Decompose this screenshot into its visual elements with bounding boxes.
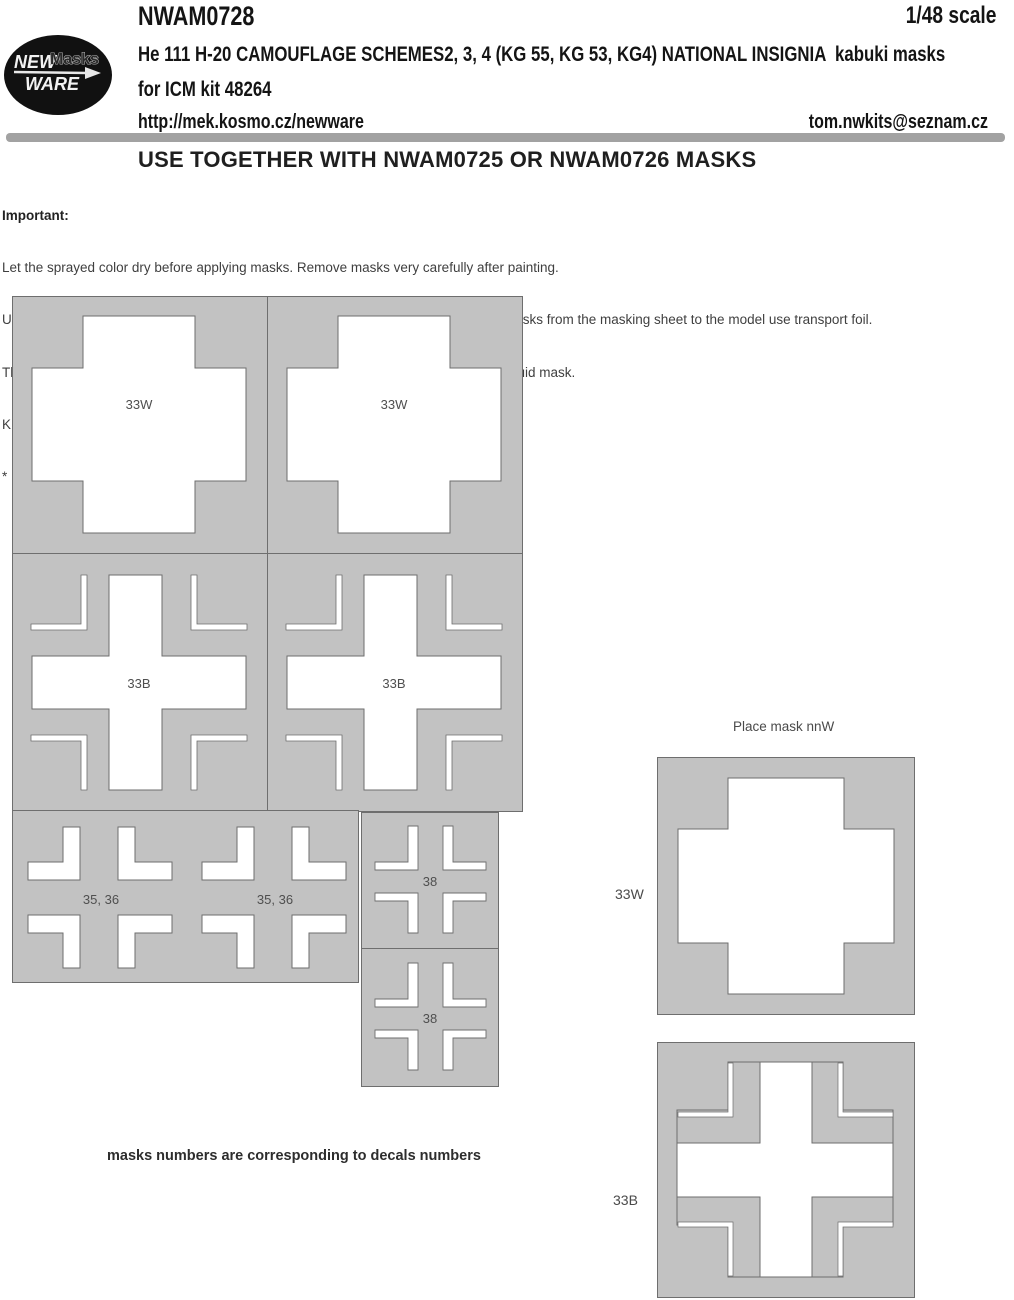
mask-label-33b: 33B [382,676,405,691]
contact-email: tom.nwkits@seznam.cz [809,111,988,134]
compatibility-notice: USE TOGETHER WITH NWAM0725 OR NWAM0726 M… [138,147,756,173]
example-mask-33b [657,1042,915,1298]
mask-label-35-36: 35, 36 [257,892,293,907]
logo-word-masks: Masks [50,51,99,68]
example-label-33b: 33B [613,1192,638,1208]
product-code: NWAM0728 [138,1,254,32]
footer-note: masks numbers are corresponding to decal… [107,1148,481,1164]
mask-label-33b: 33B [127,676,150,691]
mask-label-38: 38 [423,874,437,889]
website-url: http://mek.kosmo.cz/newware [138,111,364,134]
kit-subtitle: for ICM kit 48264 [138,78,272,102]
instruction-sheet: NEW Masks WARE NWAM0728 1/48 scale He 11… [0,0,1014,1300]
mask-label-33w: 33W [126,397,153,412]
mask-panel-38: 38 38 [361,812,499,1088]
mask-label-35-36: 35, 36 [83,892,119,907]
sheet-title: He 111 H-20 CAMOUFLAGE SCHEMES2, 3, 4 (K… [138,43,945,67]
mask-grid-33w-33b: 33W 33W 33B 33B [12,296,523,812]
placement-note-line: Place mask nnW [733,718,834,735]
instructions-heading: Important: [2,207,872,224]
example-mask-33w [657,757,915,1015]
mask-label-38: 38 [423,1011,437,1026]
header-divider-bar [6,133,1005,142]
instruction-line: Let the sprayed color dry before applyin… [2,260,872,276]
newware-logo: NEW Masks WARE [3,30,115,118]
mask-panel-35-36: 35, 36 35, 36 [12,810,359,983]
scale-label: 1/48 scale [905,2,996,30]
example-label-33w: 33W [615,886,644,902]
logo-arrow-shaft [14,72,87,73]
logo-word-ware: WARE [25,74,80,94]
mask-label-33w: 33W [381,397,408,412]
